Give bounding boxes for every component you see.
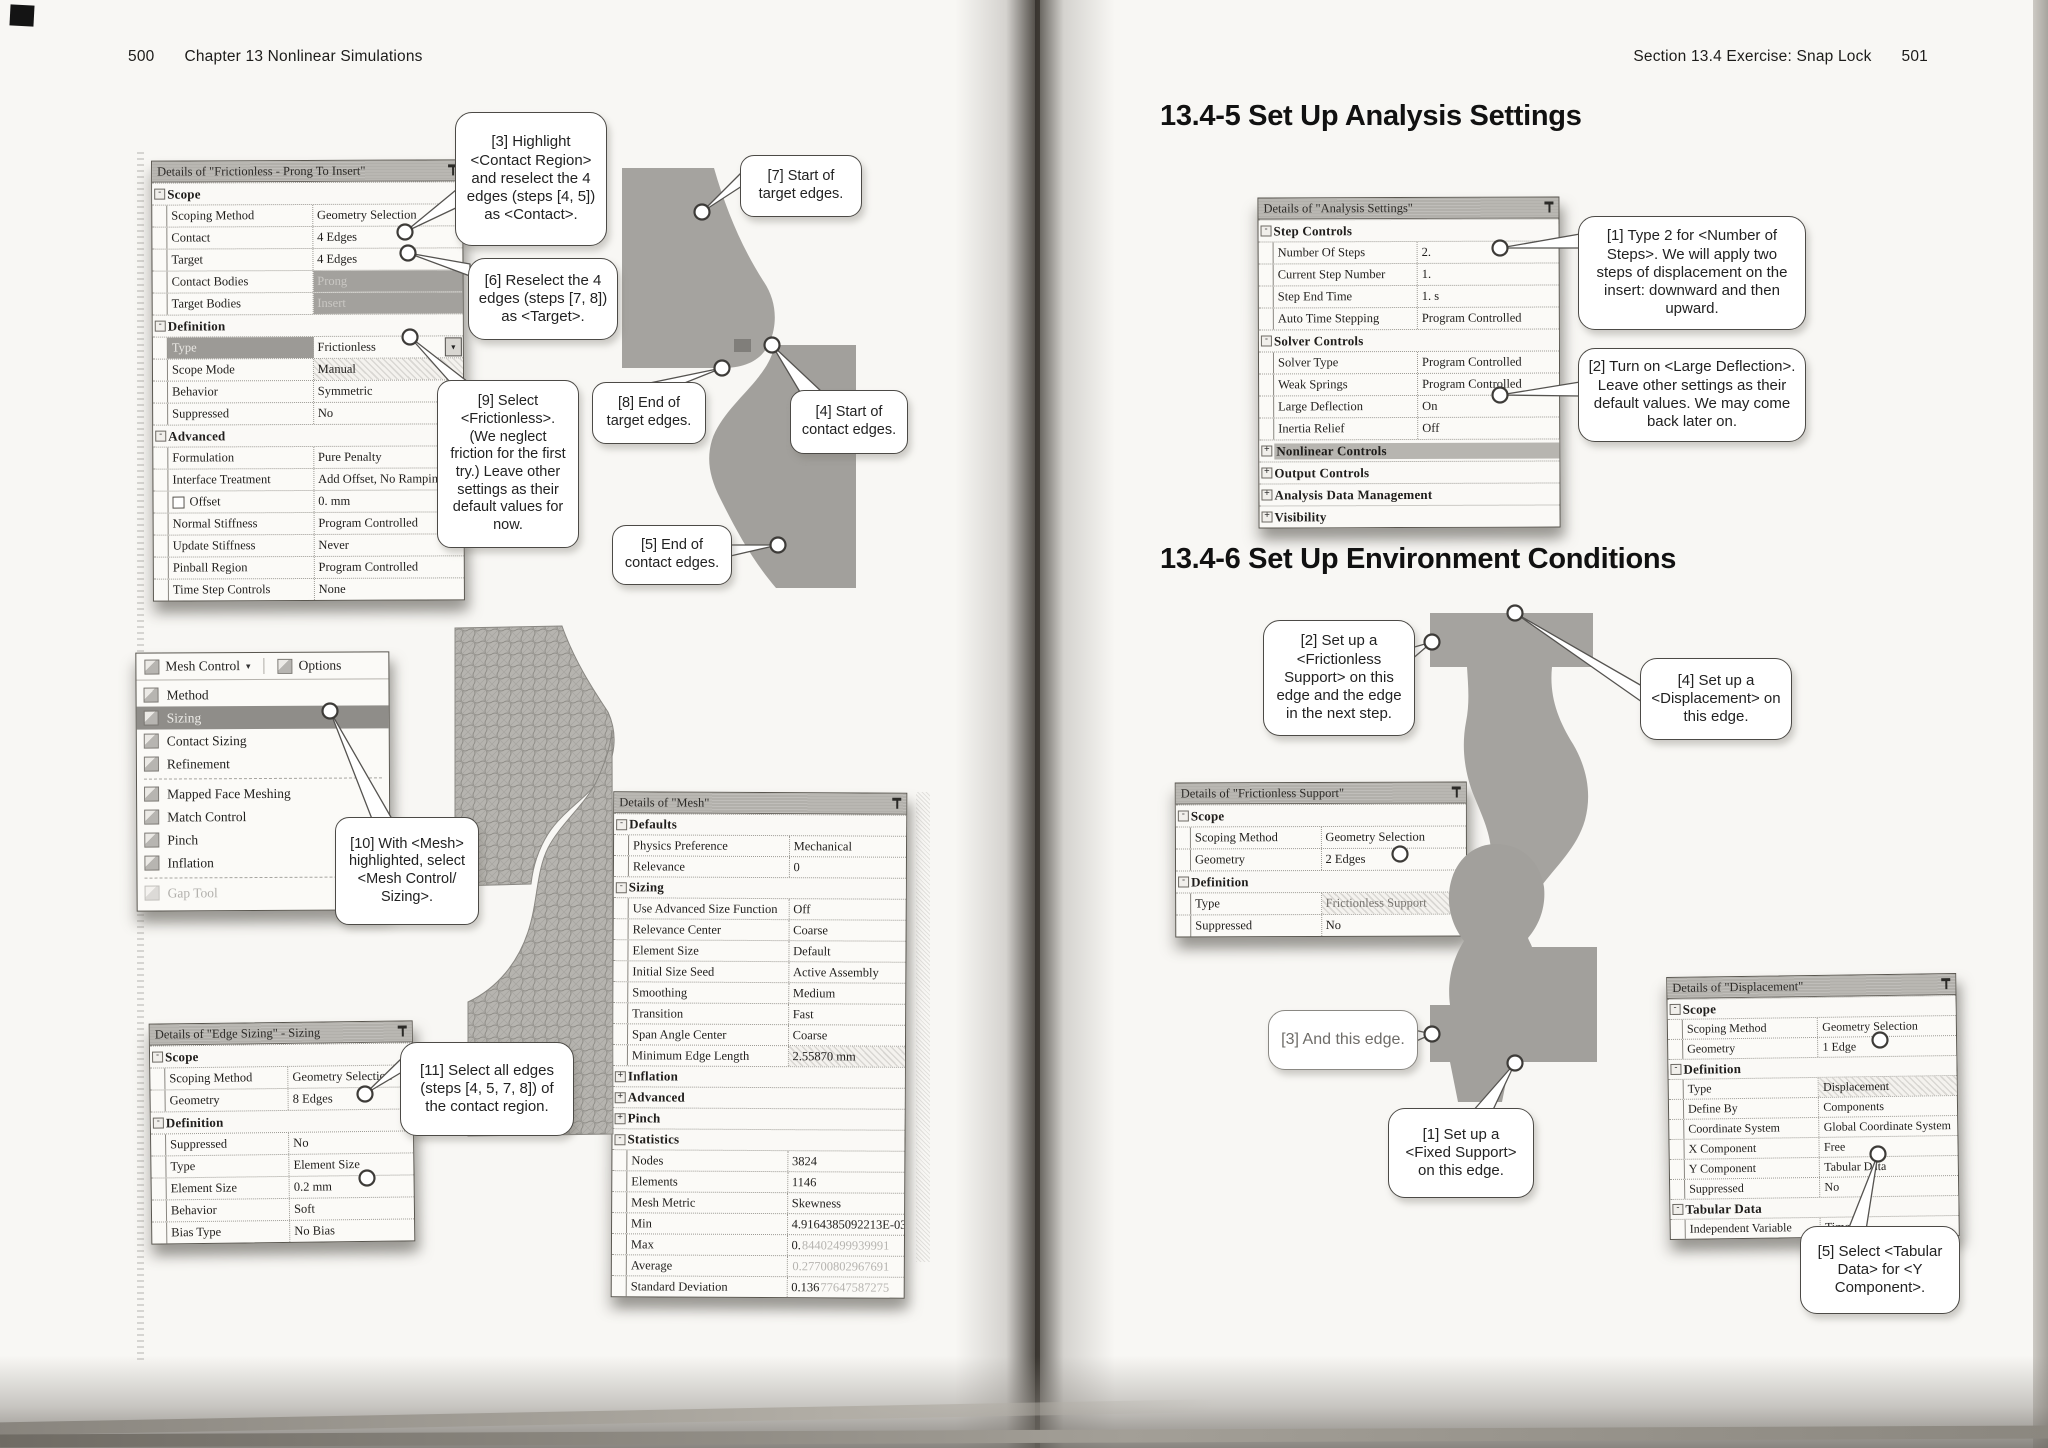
row-value[interactable]: 0.13677647587275	[787, 1277, 904, 1298]
details-pane-displacement: Details of "Displacement" -ScopeScoping …	[1666, 973, 1960, 1240]
menu-item-contact-sizing[interactable]: Contact Sizing	[137, 728, 389, 752]
row-value[interactable]: On	[1418, 395, 1559, 416]
row-label: Type	[1684, 1078, 1820, 1099]
row-gutter	[612, 1234, 627, 1254]
expand-collapse-icon[interactable]: -	[1261, 335, 1272, 346]
expand-collapse-icon[interactable]: -	[614, 1134, 625, 1145]
details-row-max[interactable]: Max0.84402499939991	[612, 1233, 904, 1256]
row-value-dim: 77647587275	[820, 1280, 889, 1295]
row-label: Y Component	[1685, 1158, 1821, 1179]
details-section-definition[interactable]: -Definition	[153, 313, 463, 336]
section-label: Inflation	[628, 1068, 905, 1085]
row-label: Contact Bodies	[168, 271, 314, 293]
details-section-scope[interactable]: -Scope	[1176, 803, 1466, 826]
row-value[interactable]: Skewness	[788, 1193, 905, 1214]
details-row-contact-bodies[interactable]: Contact BodiesProng	[153, 269, 463, 292]
details-row-auto-time-stepping[interactable]: Auto Time SteppingProgram Controlled	[1259, 306, 1559, 329]
details-row-initial-size-seed[interactable]: Initial Size SeedActive Assembly	[613, 960, 905, 983]
details-pane-contact-region: Details of "Frictionless - Prong To Inse…	[151, 159, 465, 601]
checkbox[interactable]	[173, 496, 185, 508]
menu-item-label: Gap Tool	[168, 885, 218, 901]
row-gutter	[153, 404, 168, 425]
row-value[interactable]: 1. s	[1418, 285, 1559, 306]
expand-collapse-icon[interactable]: -	[153, 1117, 164, 1128]
section-label: Nonlinear Controls	[1274, 442, 1559, 459]
row-value[interactable]: 4 Edges	[313, 226, 462, 248]
row-gutter	[1669, 1120, 1684, 1139]
details-section-defaults[interactable]: -Defaults	[614, 813, 906, 836]
details-row-formulation[interactable]: FormulationPure Penalty	[153, 445, 463, 468]
pin-icon[interactable]	[1452, 787, 1461, 799]
details-row-behavior[interactable]: BehaviorSymmetric	[153, 379, 463, 402]
expand-collapse-icon[interactable]: -	[155, 321, 166, 332]
details-row-target-bodies[interactable]: Target BodiesInsert	[153, 291, 463, 314]
row-value[interactable]: No	[1322, 914, 1467, 936]
expand-collapse-icon[interactable]: +	[615, 1071, 626, 1082]
details-row-define-by[interactable]: Define ByComponents	[1669, 1095, 1957, 1119]
row-gutter	[150, 1090, 165, 1111]
section-label: Scope	[1191, 807, 1466, 824]
expand-collapse-icon[interactable]: -	[616, 819, 627, 830]
row-label: Min	[627, 1213, 788, 1234]
pane-title: Details of "Frictionless - Prong To Inse…	[157, 163, 365, 179]
details-row-suppressed[interactable]: SuppressedNo	[1176, 913, 1466, 936]
details-row-scope-mode[interactable]: Scope ModeManual	[153, 357, 463, 380]
details-row-contact[interactable]: Contact4 Edges	[152, 225, 462, 248]
details-section-nonlinear-controls[interactable]: +Nonlinear Controls	[1259, 438, 1559, 461]
row-label: Relevance Center	[629, 919, 790, 940]
callout-3-and-this-edge: [3] And this edge.	[1268, 1010, 1418, 1070]
details-row-scoping-method[interactable]: Scoping MethodGeometry Selection	[150, 1064, 412, 1089]
details-section-step-controls[interactable]: -Step Controls	[1259, 218, 1559, 241]
row-label: Physics Preference	[629, 835, 790, 856]
row-value[interactable]: Free	[1820, 1136, 1958, 1157]
details-row-offset[interactable]: Offset0. mm	[153, 489, 463, 512]
row-value[interactable]: 0.27700802967691	[787, 1256, 904, 1277]
details-row-elements[interactable]: Elements1146	[612, 1170, 904, 1193]
options-button[interactable]: Options	[275, 657, 345, 675]
menu-item-sizing[interactable]: Sizing	[137, 705, 389, 729]
details-row-geometry[interactable]: Geometry1 Edge	[1668, 1035, 1956, 1059]
book-gutter-shadow	[955, 0, 1115, 1448]
options-icon	[278, 658, 293, 673]
details-section-analysis-data-management[interactable]: +Analysis Data Management	[1259, 482, 1559, 505]
expand-collapse-icon[interactable]: +	[615, 1113, 626, 1124]
row-value[interactable]: 2.	[1418, 241, 1559, 262]
row-value[interactable]: 1 Edge	[1818, 1036, 1956, 1057]
row-value[interactable]: Coarse	[789, 1025, 906, 1046]
row-gutter	[1176, 827, 1191, 848]
callout-7-start-target-edges: [7] Start of target edges.	[740, 155, 862, 217]
callout-10-mesh-control-sizing: [10] With <Mesh> highlighted, select <Me…	[335, 817, 479, 925]
row-value[interactable]: 8 Edges	[289, 1087, 413, 1110]
menu-item-label: Pinch	[167, 832, 198, 848]
details-row-standard-deviation[interactable]: Standard Deviation0.13677647587275	[612, 1275, 904, 1298]
details-row-time-step-controls[interactable]: Time Step ControlsNone	[154, 577, 464, 600]
section-label: Solver Controls	[1274, 332, 1559, 349]
row-label: Type	[168, 337, 314, 359]
details-row-geometry[interactable]: Geometry8 Edges	[150, 1086, 412, 1111]
details-row-number-of-steps[interactable]: Number Of Steps2.	[1259, 240, 1559, 263]
row-value[interactable]: 4.9164385092213E-03	[788, 1214, 905, 1235]
row-label: Transition	[628, 1003, 789, 1024]
details-section-sizing[interactable]: -Sizing	[614, 876, 906, 899]
expand-collapse-icon[interactable]: -	[154, 189, 165, 200]
details-row-relevance[interactable]: Relevance0	[614, 855, 906, 878]
details-row-type[interactable]: TypeFrictionless Support	[1176, 891, 1466, 914]
page-number-left: 500	[128, 48, 154, 66]
details-row-suppressed[interactable]: SuppressedNo	[153, 401, 463, 424]
pane-title: Details of "Edge Sizing" - Sizing	[155, 1025, 321, 1042]
row-label: Behavior	[167, 1199, 290, 1222]
row-value[interactable]: Global Coordinate System	[1820, 1116, 1958, 1137]
details-row-solver-type[interactable]: Solver TypeProgram Controlled	[1259, 350, 1559, 373]
details-row-type[interactable]: TypeFrictionless▼	[153, 335, 463, 358]
section-label: Advanced	[168, 427, 463, 444]
row-gutter	[612, 1255, 627, 1275]
details-section-advanced[interactable]: -Advanced	[153, 423, 463, 446]
row-value[interactable]: Components	[1819, 1096, 1957, 1117]
row-label: Type	[166, 1155, 289, 1178]
row-label: Scoping Method	[1191, 827, 1322, 848]
callout-4-displacement-edge: [4] Set up a <Displacement> on this edge…	[1640, 658, 1792, 740]
details-pane-mesh: Details of "Mesh" -DefaultsPhysics Prefe…	[611, 791, 908, 1299]
row-label: Geometry	[1683, 1038, 1819, 1059]
details-row-target[interactable]: Target4 Edges	[152, 247, 462, 270]
row-value[interactable]: No	[289, 1131, 413, 1154]
callout-pointer	[772, 345, 822, 392]
details-section-solver-controls[interactable]: -Solver Controls	[1259, 328, 1559, 351]
row-gutter	[613, 940, 628, 960]
row-value[interactable]: Geometry Selection	[1818, 1016, 1956, 1037]
details-section-pinch[interactable]: +Pinch	[613, 1107, 905, 1130]
left-running-head: 500 Chapter 13 Nonlinear Simulations	[128, 48, 423, 66]
details-row-scoping-method[interactable]: Scoping MethodGeometry Selection	[152, 203, 462, 226]
details-row-element-size[interactable]: Element SizeDefault	[613, 939, 905, 962]
callout-1-number-of-steps: [1] Type 2 for <Number of Steps>. We wil…	[1578, 216, 1806, 330]
details-row-interface-treatment[interactable]: Interface TreatmentAdd Offset, No Rampin…	[153, 467, 463, 490]
row-value[interactable]: Active Assembly	[789, 962, 906, 983]
expand-collapse-icon[interactable]: -	[1178, 810, 1189, 821]
row-gutter	[614, 856, 629, 876]
details-row-step-end-time[interactable]: Step End Time1. s	[1259, 284, 1559, 307]
details-row-mesh-metric[interactable]: Mesh MetricSkewness	[612, 1191, 904, 1214]
details-pane-header[interactable]: Details of "Mesh"	[614, 792, 906, 815]
row-label: Pinball Region	[169, 557, 315, 579]
section-label: Scope	[1683, 997, 1956, 1017]
row-value[interactable]: Element Size	[289, 1153, 413, 1176]
details-row-normal-stiffness[interactable]: Normal StiffnessProgram Controlled	[154, 511, 464, 534]
expand-collapse-icon[interactable]: +	[1262, 511, 1273, 522]
row-gutter	[154, 536, 169, 557]
row-value[interactable]: Frictionless▼	[313, 336, 462, 358]
pin-icon[interactable]	[398, 1025, 407, 1037]
row-value[interactable]: Off	[1418, 417, 1559, 438]
details-row-update-stiffness[interactable]: Update StiffnessNever	[154, 533, 464, 556]
menu-separator	[144, 777, 382, 779]
details-row-suppressed[interactable]: SuppressedNo	[151, 1130, 413, 1155]
row-gutter	[154, 558, 169, 579]
row-value[interactable]: Geometry Selection	[288, 1065, 412, 1088]
row-value[interactable]: Prong	[313, 270, 462, 292]
row-label: Auto Time Stepping	[1274, 308, 1418, 330]
mesh-control-button[interactable]: Mesh Control ▾	[141, 657, 253, 676]
row-label: Behavior	[168, 381, 314, 403]
row-value[interactable]: 2 Edges	[1321, 848, 1466, 870]
callout-marker-env-displacement	[1508, 606, 1523, 621]
row-gutter	[613, 1024, 628, 1044]
row-value[interactable]: 1.	[1418, 263, 1559, 284]
details-row-transition[interactable]: TransitionFast	[613, 1002, 905, 1025]
expand-collapse-icon[interactable]: +	[1261, 467, 1272, 478]
row-value[interactable]: Program Controlled	[1418, 351, 1559, 372]
row-gutter	[1259, 286, 1274, 307]
row-label: Coordinate System	[1684, 1118, 1820, 1139]
running-head-right-text: Section 13.4 Exercise: Snap Lock	[1633, 48, 1871, 66]
row-label: Time Step Controls	[169, 579, 315, 601]
row-gutter	[154, 514, 169, 535]
callout-5-end-contact-edges: [5] End of contact edges.	[612, 525, 732, 585]
row-value[interactable]: No Bias	[290, 1219, 414, 1242]
row-gutter	[1669, 1100, 1684, 1119]
row-gutter	[1668, 1040, 1683, 1059]
row-gutter	[612, 1150, 627, 1170]
row-label: Update Stiffness	[169, 535, 315, 557]
row-value[interactable]: 2.55870 mm	[788, 1046, 905, 1067]
details-row-inertia-relief[interactable]: Inertia ReliefOff	[1259, 416, 1559, 439]
match-control-icon	[144, 810, 159, 825]
details-row-y-component[interactable]: Y ComponentTabular Data	[1670, 1155, 1958, 1179]
row-value[interactable]: 0	[789, 857, 906, 878]
pin-icon[interactable]	[1544, 201, 1553, 213]
pin-icon[interactable]	[892, 798, 901, 810]
row-label: Interface Treatment	[168, 469, 314, 491]
row-gutter	[153, 492, 168, 513]
row-gutter	[153, 360, 168, 381]
section-label: Definition	[1683, 1057, 1956, 1077]
row-gutter	[612, 1213, 627, 1233]
details-row-x-component[interactable]: X ComponentFree	[1669, 1135, 1957, 1159]
expand-collapse-icon[interactable]: -	[152, 1051, 163, 1062]
section-label: Visibility	[1275, 508, 1560, 525]
details-row-bias-type[interactable]: Bias TypeNo Bias	[152, 1218, 414, 1243]
row-label: Number Of Steps	[1274, 242, 1418, 264]
details-row-scoping-method[interactable]: Scoping MethodGeometry Selection	[1176, 825, 1466, 848]
scan-corner-mark	[9, 4, 34, 26]
row-gutter	[151, 1156, 166, 1177]
callout-marker-env-fixed-support	[1508, 1056, 1523, 1071]
details-row-nodes[interactable]: Nodes3824	[612, 1149, 904, 1172]
row-value[interactable]: Mechanical	[790, 836, 907, 857]
row-value[interactable]: 3824	[788, 1151, 905, 1172]
details-section-advanced[interactable]: +Advanced	[613, 1086, 905, 1109]
pin-icon[interactable]	[1941, 978, 1950, 990]
section-label: Pinch	[628, 1110, 905, 1127]
menu-item-label: Contact Sizing	[167, 733, 247, 749]
details-section-visibility[interactable]: +Visibility	[1259, 504, 1559, 527]
mapped-face-meshing-icon	[144, 787, 159, 802]
callout-marker-env-frictionless	[1425, 635, 1440, 650]
row-label: Span Angle Center	[628, 1024, 789, 1045]
details-row-geometry[interactable]: Geometry2 Edges	[1176, 847, 1466, 870]
row-gutter	[614, 898, 629, 918]
row-label: Scoping Method	[1683, 1018, 1819, 1039]
expand-collapse-icon[interactable]: -	[616, 882, 627, 893]
row-gutter	[1259, 242, 1274, 263]
details-row-smoothing[interactable]: SmoothingMedium	[613, 981, 905, 1004]
row-value[interactable]: 0.2 mm	[290, 1175, 414, 1198]
pane-title: Details of "Frictionless Support"	[1181, 785, 1344, 801]
row-label: Use Advanced Size Function	[629, 898, 790, 919]
row-value[interactable]: Tabular Data	[1820, 1156, 1958, 1177]
row-label: Offset	[168, 491, 314, 513]
details-section-inflation[interactable]: +Inflation	[613, 1065, 905, 1088]
row-value[interactable]: Program Controlled	[314, 556, 463, 578]
details-row-suppressed[interactable]: SuppressedNo	[1670, 1175, 1958, 1199]
details-row-type[interactable]: TypeElement Size	[151, 1152, 413, 1177]
row-label: Current Step Number	[1274, 264, 1418, 286]
details-row-use-advanced-size-function[interactable]: Use Advanced Size FunctionOff	[614, 897, 906, 920]
row-value[interactable]: Fast	[789, 1004, 906, 1025]
section-label: Definition	[1191, 873, 1466, 890]
row-gutter	[150, 1068, 165, 1089]
menu-item-label: Method	[167, 687, 209, 703]
dropdown-arrow-icon[interactable]: ▼	[445, 337, 462, 356]
row-value[interactable]: 0.84402499939991	[787, 1235, 904, 1256]
row-gutter	[152, 1222, 167, 1243]
details-row-element-size[interactable]: Element Size0.2 mm	[152, 1174, 414, 1199]
row-gutter	[1670, 1160, 1685, 1179]
menu-item-label: Mapped Face Meshing	[167, 785, 291, 802]
row-label: Average	[627, 1255, 788, 1276]
scan-noise-middle	[916, 792, 930, 1262]
details-section-scope[interactable]: -Scope	[152, 181, 462, 204]
row-label: Type	[1191, 893, 1322, 914]
row-value[interactable]: Off	[789, 899, 906, 920]
expand-collapse-icon[interactable]: +	[615, 1092, 626, 1103]
details-row-current-step-number[interactable]: Current Step Number1.	[1259, 262, 1559, 285]
row-value[interactable]: Medium	[789, 983, 906, 1004]
row-value[interactable]: Program Controlled	[1418, 373, 1559, 394]
row-value[interactable]: Manual	[314, 358, 463, 380]
callout-pointer	[1515, 613, 1642, 702]
section-heading-13-4-6: 13.4-6 Set Up Environment Conditions	[1160, 543, 1676, 576]
details-row-weak-springs[interactable]: Weak SpringsProgram Controlled	[1259, 372, 1559, 395]
row-label: X Component	[1684, 1138, 1820, 1159]
row-value[interactable]: Geometry Selection	[1321, 826, 1466, 848]
row-label: Geometry	[165, 1089, 288, 1112]
details-section-definition[interactable]: -Definition	[151, 1108, 413, 1133]
row-value[interactable]: Geometry Selection	[313, 204, 462, 226]
menu-item-method[interactable]: Method	[136, 682, 388, 706]
callout-marker-target-end	[715, 361, 730, 376]
row-label: Formulation	[168, 447, 314, 469]
right-running-head: Section 13.4 Exercise: Snap Lock 501	[1240, 48, 1928, 66]
expand-collapse-icon[interactable]: -	[1178, 876, 1189, 887]
row-gutter	[613, 1045, 628, 1065]
expand-collapse-icon[interactable]: -	[1672, 1204, 1683, 1215]
row-label: Scoping Method	[167, 205, 313, 227]
details-pane-frictionless-support: Details of "Frictionless Support" -Scope…	[1175, 781, 1468, 937]
row-value[interactable]: Frictionless Support	[1322, 892, 1467, 914]
row-gutter	[1259, 396, 1274, 417]
row-gutter	[612, 1276, 627, 1296]
expand-collapse-icon[interactable]: +	[1261, 445, 1272, 456]
details-pane-header[interactable]: Details of "Frictionless - Prong To Inse…	[152, 160, 462, 182]
menu-item-refinement[interactable]: Refinement	[137, 751, 389, 775]
row-gutter	[612, 1192, 627, 1212]
row-gutter	[1259, 308, 1274, 329]
menu-item-mapped-face-meshing[interactable]: Mapped Face Meshing	[137, 781, 389, 805]
details-row-physics-preference[interactable]: Physics PreferenceMechanical	[614, 834, 906, 857]
details-row-span-angle-center[interactable]: Span Angle CenterCoarse	[613, 1023, 905, 1046]
row-value[interactable]: Default	[789, 941, 906, 962]
row-value[interactable]: 1146	[788, 1172, 905, 1193]
details-row-min[interactable]: Min4.9164385092213E-03	[612, 1212, 904, 1235]
expand-collapse-icon[interactable]: -	[1261, 225, 1272, 236]
expand-collapse-icon[interactable]: -	[1670, 1064, 1681, 1075]
callout-pointer	[1472, 1063, 1515, 1112]
details-row-minimum-edge-length[interactable]: Minimum Edge Length2.55870 mm	[613, 1044, 905, 1067]
expand-collapse-icon[interactable]: +	[1261, 489, 1272, 500]
details-row-large-deflection[interactable]: Large DeflectionOn	[1259, 394, 1559, 417]
expand-collapse-icon[interactable]: -	[155, 431, 166, 442]
row-value[interactable]: Program Controlled	[1418, 307, 1559, 328]
details-section-scope[interactable]: -Scope	[150, 1042, 412, 1067]
details-pane-header[interactable]: Details of "Analysis Settings"	[1258, 197, 1558, 219]
row-value[interactable]: 4 Edges	[313, 248, 462, 270]
row-gutter	[153, 470, 168, 491]
options-label: Options	[299, 658, 342, 674]
row-value-dim: 84402499939991	[802, 1238, 890, 1253]
row-label: Target	[167, 249, 313, 271]
row-gutter	[1669, 1080, 1684, 1099]
pane-title: Details of "Mesh"	[619, 795, 709, 810]
details-section-definition[interactable]: -Definition	[1176, 869, 1466, 892]
row-gutter	[1670, 1180, 1685, 1199]
mesh-toolbar: Mesh Control ▾ Options	[136, 652, 388, 680]
row-gutter	[152, 228, 167, 249]
details-row-type[interactable]: TypeDisplacement	[1669, 1075, 1957, 1099]
details-row-relevance-center[interactable]: Relevance CenterCoarse	[614, 918, 906, 941]
page-edge-strip	[2033, 0, 2048, 1448]
row-value[interactable]: No	[1820, 1176, 1958, 1197]
toolbar-separator	[264, 658, 265, 674]
row-value[interactable]: Coarse	[789, 920, 906, 941]
row-gutter	[612, 1171, 627, 1191]
details-row-behavior[interactable]: BehaviorSoft	[152, 1196, 414, 1221]
details-section-output-controls[interactable]: +Output Controls	[1259, 460, 1559, 483]
details-row-pinball-region[interactable]: Pinball RegionProgram Controlled	[154, 555, 464, 578]
details-section-statistics[interactable]: -Statistics	[612, 1128, 904, 1151]
expand-collapse-icon[interactable]: -	[1670, 1004, 1681, 1015]
pane-title: Details of "Analysis Settings"	[1263, 200, 1412, 216]
menu-item-label: Sizing	[167, 710, 202, 726]
details-row-average[interactable]: Average0.27700802967691	[612, 1254, 904, 1277]
page-number-right: 501	[1902, 48, 1928, 66]
details-pane-header[interactable]: Details of "Frictionless Support"	[1176, 782, 1466, 804]
row-gutter	[1176, 849, 1191, 870]
section-heading-13-4-5: 13.4-5 Set Up Analysis Settings	[1160, 100, 1582, 133]
details-row-scoping-method[interactable]: Scoping MethodGeometry Selection	[1668, 1015, 1956, 1039]
row-value[interactable]: None	[315, 578, 464, 600]
row-value[interactable]: Insert	[313, 292, 462, 314]
row-value[interactable]: Displacement	[1819, 1076, 1957, 1097]
callout-marker-target-start	[695, 205, 710, 220]
details-row-coordinate-system[interactable]: Coordinate SystemGlobal Coordinate Syste…	[1669, 1115, 1957, 1139]
row-value[interactable]: Soft	[290, 1197, 414, 1220]
row-label: Relevance	[629, 856, 790, 877]
